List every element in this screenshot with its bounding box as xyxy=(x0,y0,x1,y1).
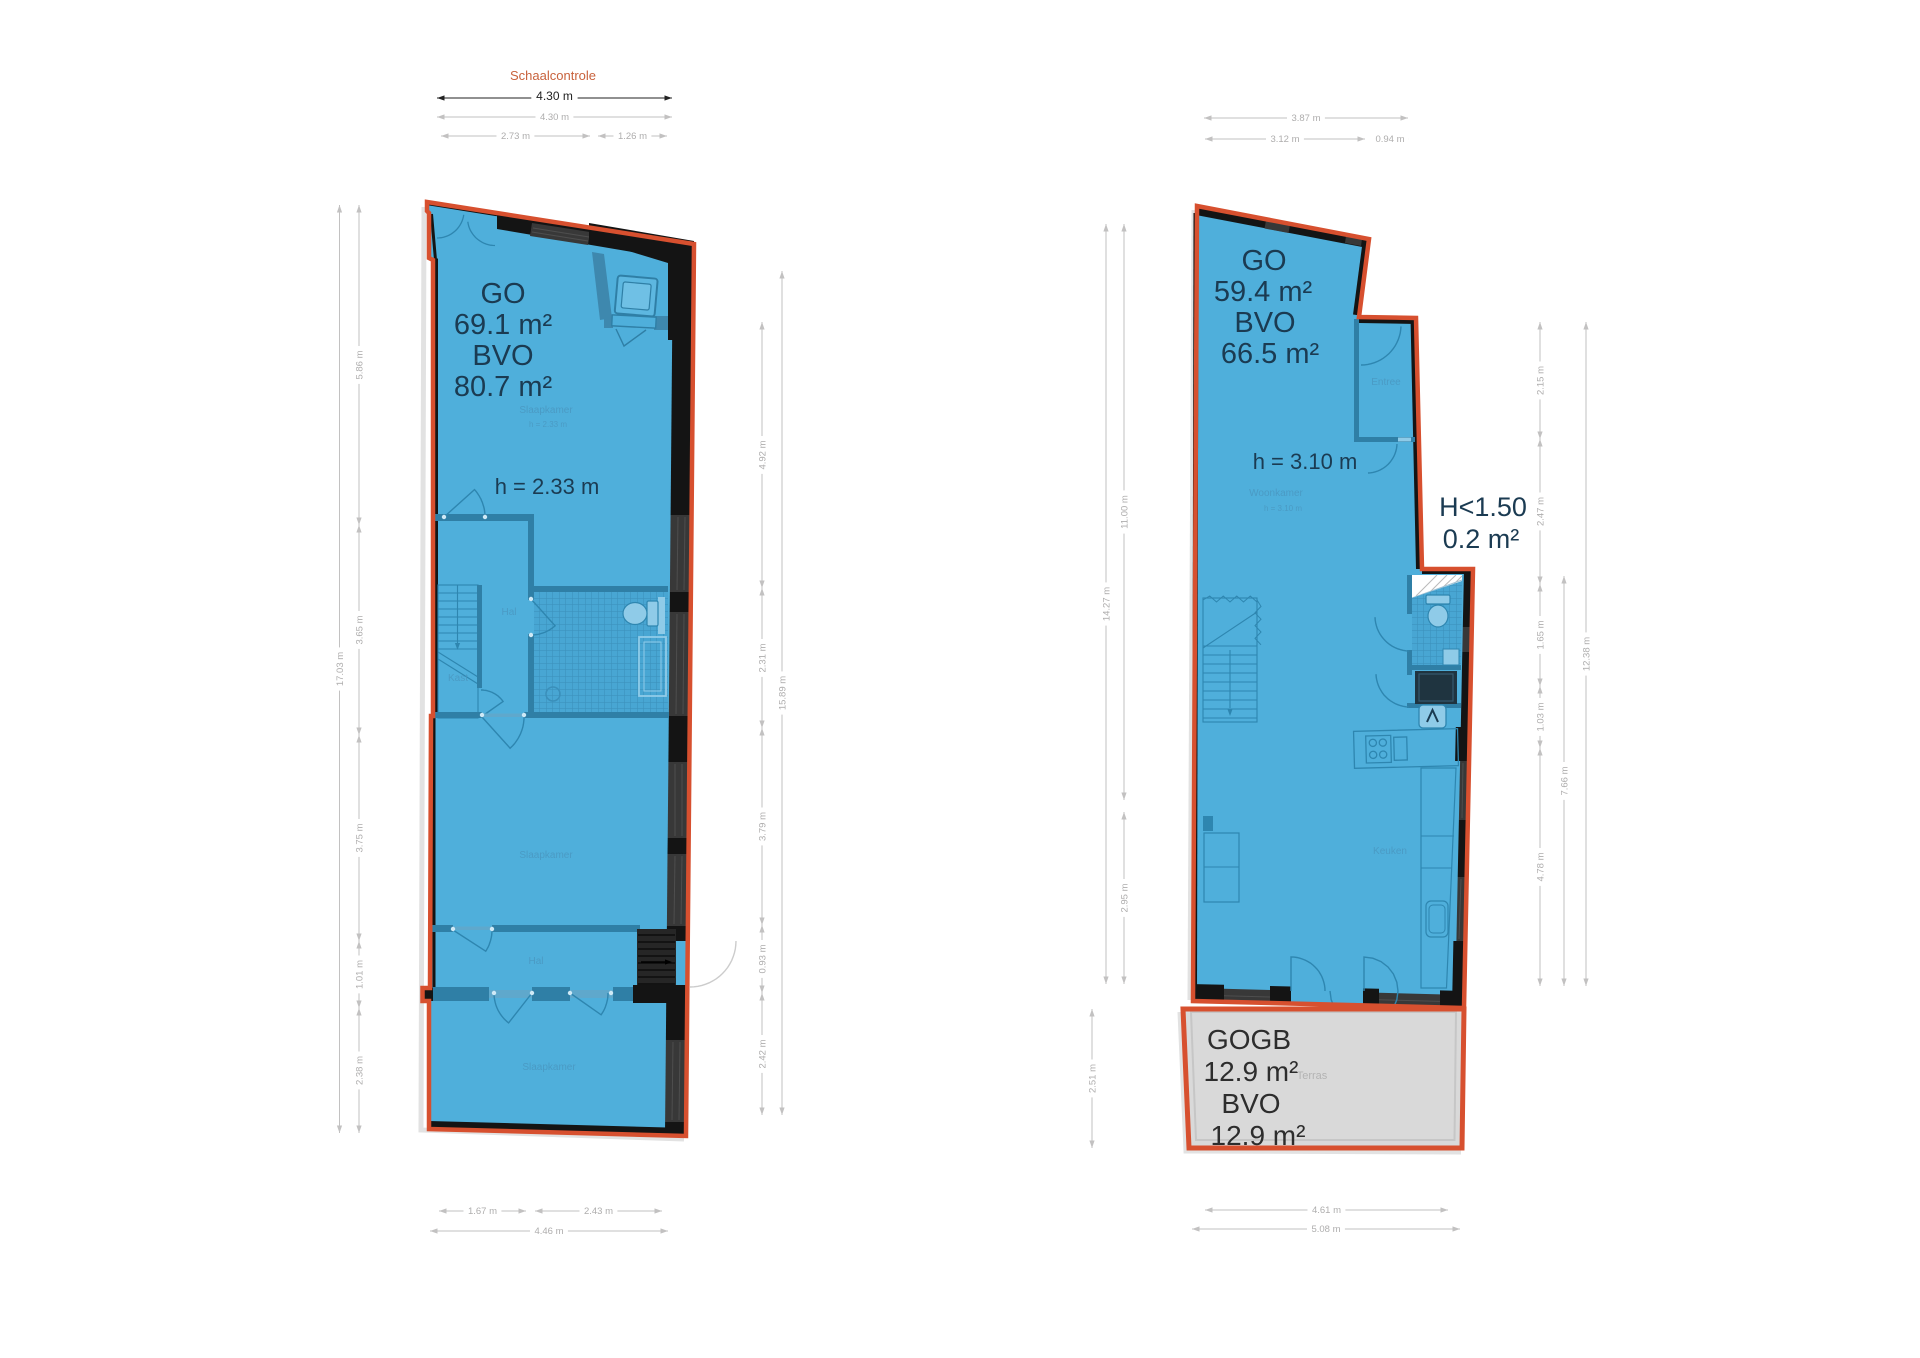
svg-text:2.73 m: 2.73 m xyxy=(501,131,530,142)
svg-text:2.38 m: 2.38 m xyxy=(355,1056,366,1085)
svg-text:7.66 m: 7.66 m xyxy=(1560,766,1571,795)
svg-text:1.03 m: 1.03 m xyxy=(1536,702,1547,731)
svg-text:h = 2.33 m: h = 2.33 m xyxy=(495,474,600,499)
svg-text:5.08 m: 5.08 m xyxy=(1311,1224,1340,1235)
svg-text:GO: GO xyxy=(1241,245,1286,277)
svg-text:4.30 m: 4.30 m xyxy=(536,89,573,103)
svg-text:Terras: Terras xyxy=(1297,1070,1328,1082)
svg-text:1.26 m: 1.26 m xyxy=(618,131,647,142)
svg-text:2.15 m: 2.15 m xyxy=(1536,366,1547,395)
svg-text:12.38 m: 12.38 m xyxy=(1582,637,1593,671)
svg-text:5.86 m: 5.86 m xyxy=(355,350,366,379)
svg-text:4.30 m: 4.30 m xyxy=(540,112,569,123)
svg-text:15.89 m: 15.89 m xyxy=(778,676,789,710)
svg-text:17.03 m: 17.03 m xyxy=(335,652,346,686)
svg-text:GO: GO xyxy=(480,278,525,310)
svg-text:Slaapkamer: Slaapkamer xyxy=(519,850,573,861)
svg-text:BVO: BVO xyxy=(1221,1088,1280,1119)
svg-text:h = 3.10 m: h = 3.10 m xyxy=(1264,504,1302,513)
svg-text:11.00 m: 11.00 m xyxy=(1120,495,1131,529)
svg-text:3.65 m: 3.65 m xyxy=(355,615,366,644)
svg-text:Slaapkamer: Slaapkamer xyxy=(522,1062,576,1073)
svg-text:Hal: Hal xyxy=(528,956,543,967)
svg-text:3.12 m: 3.12 m xyxy=(1270,134,1299,145)
svg-text:Hal: Hal xyxy=(501,607,516,618)
svg-text:1.01 m: 1.01 m xyxy=(355,960,366,989)
svg-text:Woonkamer: Woonkamer xyxy=(1249,488,1303,499)
svg-text:3.87 m: 3.87 m xyxy=(1291,113,1320,124)
svg-text:3.79 m: 3.79 m xyxy=(758,812,769,841)
svg-text:59.4 m²: 59.4 m² xyxy=(1214,276,1313,308)
svg-text:3.75 m: 3.75 m xyxy=(355,823,366,852)
svg-text:80.7 m²: 80.7 m² xyxy=(454,371,553,403)
svg-text:1.65 m: 1.65 m xyxy=(1536,620,1547,649)
svg-text:66.5 m²: 66.5 m² xyxy=(1221,338,1320,370)
svg-text:BVO: BVO xyxy=(472,340,533,372)
svg-text:4.61 m: 4.61 m xyxy=(1312,1205,1341,1216)
svg-text:Slaapkamer: Slaapkamer xyxy=(519,405,573,416)
svg-text:0.2 m²: 0.2 m² xyxy=(1443,524,1520,554)
svg-text:GOGB: GOGB xyxy=(1207,1024,1291,1055)
svg-text:2.31 m: 2.31 m xyxy=(758,643,769,672)
svg-text:h = 2.33 m: h = 2.33 m xyxy=(529,420,567,429)
svg-text:0.94 m: 0.94 m xyxy=(1375,134,1404,145)
svg-text:2.43 m: 2.43 m xyxy=(584,1206,613,1217)
svg-text:Entree: Entree xyxy=(1371,377,1401,388)
svg-text:12.9 m²: 12.9 m² xyxy=(1211,1120,1306,1151)
svg-text:4.92 m: 4.92 m xyxy=(758,440,769,469)
svg-text:Schaalcontrole: Schaalcontrole xyxy=(510,68,596,83)
svg-text:2.42 m: 2.42 m xyxy=(758,1039,769,1068)
svg-text:2.51 m: 2.51 m xyxy=(1088,1064,1099,1093)
svg-text:Kast: Kast xyxy=(448,673,468,684)
svg-text:1.67 m: 1.67 m xyxy=(468,1206,497,1217)
svg-text:Keuken: Keuken xyxy=(1373,846,1407,857)
svg-text:12.9 m²: 12.9 m² xyxy=(1204,1056,1299,1087)
svg-text:BVO: BVO xyxy=(1234,307,1295,339)
svg-text:69.1 m²: 69.1 m² xyxy=(454,309,553,341)
svg-text:14.27 m: 14.27 m xyxy=(1102,587,1113,621)
svg-text:2.95 m: 2.95 m xyxy=(1120,883,1131,912)
svg-text:2.47 m: 2.47 m xyxy=(1536,497,1547,526)
svg-text:h = 3.10 m: h = 3.10 m xyxy=(1253,449,1358,474)
svg-text:4.78 m: 4.78 m xyxy=(1536,852,1547,881)
svg-text:0.93 m: 0.93 m xyxy=(758,944,769,973)
svg-text:H<1.50: H<1.50 xyxy=(1439,492,1527,522)
svg-text:4.46 m: 4.46 m xyxy=(534,1226,563,1237)
